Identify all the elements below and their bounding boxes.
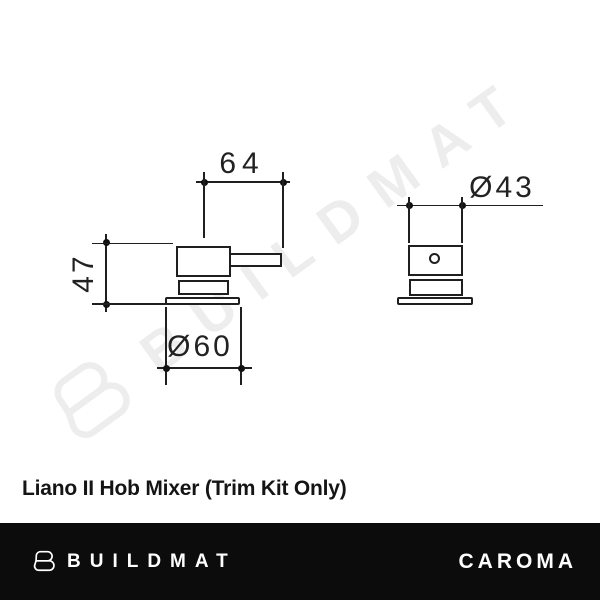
mixer-body-lower (178, 280, 229, 295)
buildmat-brand: BUILDMAT (30, 523, 237, 600)
mixer-body-upper (176, 246, 231, 277)
extension-line (240, 307, 242, 385)
caroma-wordmark: CAROMA (459, 523, 578, 600)
extension-line (282, 172, 284, 248)
mixer-base-plate (165, 297, 240, 305)
mixer-body-lower-front (409, 279, 463, 296)
extension-line (92, 303, 166, 305)
extension-line (461, 197, 463, 243)
buildmat-wordmark: BUILDMAT (67, 552, 237, 571)
dimension-line (196, 181, 290, 183)
dimension-label-width: 64 (192, 149, 292, 179)
footer-bar: BUILDMAT CAROMA (0, 523, 600, 600)
dimension-label-diameter: Ø43 (452, 173, 552, 203)
dimension-dot (163, 365, 170, 372)
dimension-line (397, 205, 543, 207)
handle-pivot-dot (429, 253, 440, 264)
product-title: Liano II Hob Mixer (Trim Kit Only) (22, 477, 347, 501)
extension-line (408, 197, 410, 243)
buildmat-logo-icon (33, 346, 147, 457)
extension-line (203, 172, 205, 238)
dimension-label-height: 47 (69, 233, 99, 313)
buildmat-logo-icon (30, 550, 57, 574)
dimension-dot (238, 365, 245, 372)
extension-line (165, 307, 167, 385)
mixer-lever-handle (229, 253, 282, 267)
product-spec-image: BUILDMAT 64 47 Ø60 (0, 0, 600, 600)
extension-line (92, 243, 173, 245)
mixer-base-plate-front (397, 297, 473, 305)
